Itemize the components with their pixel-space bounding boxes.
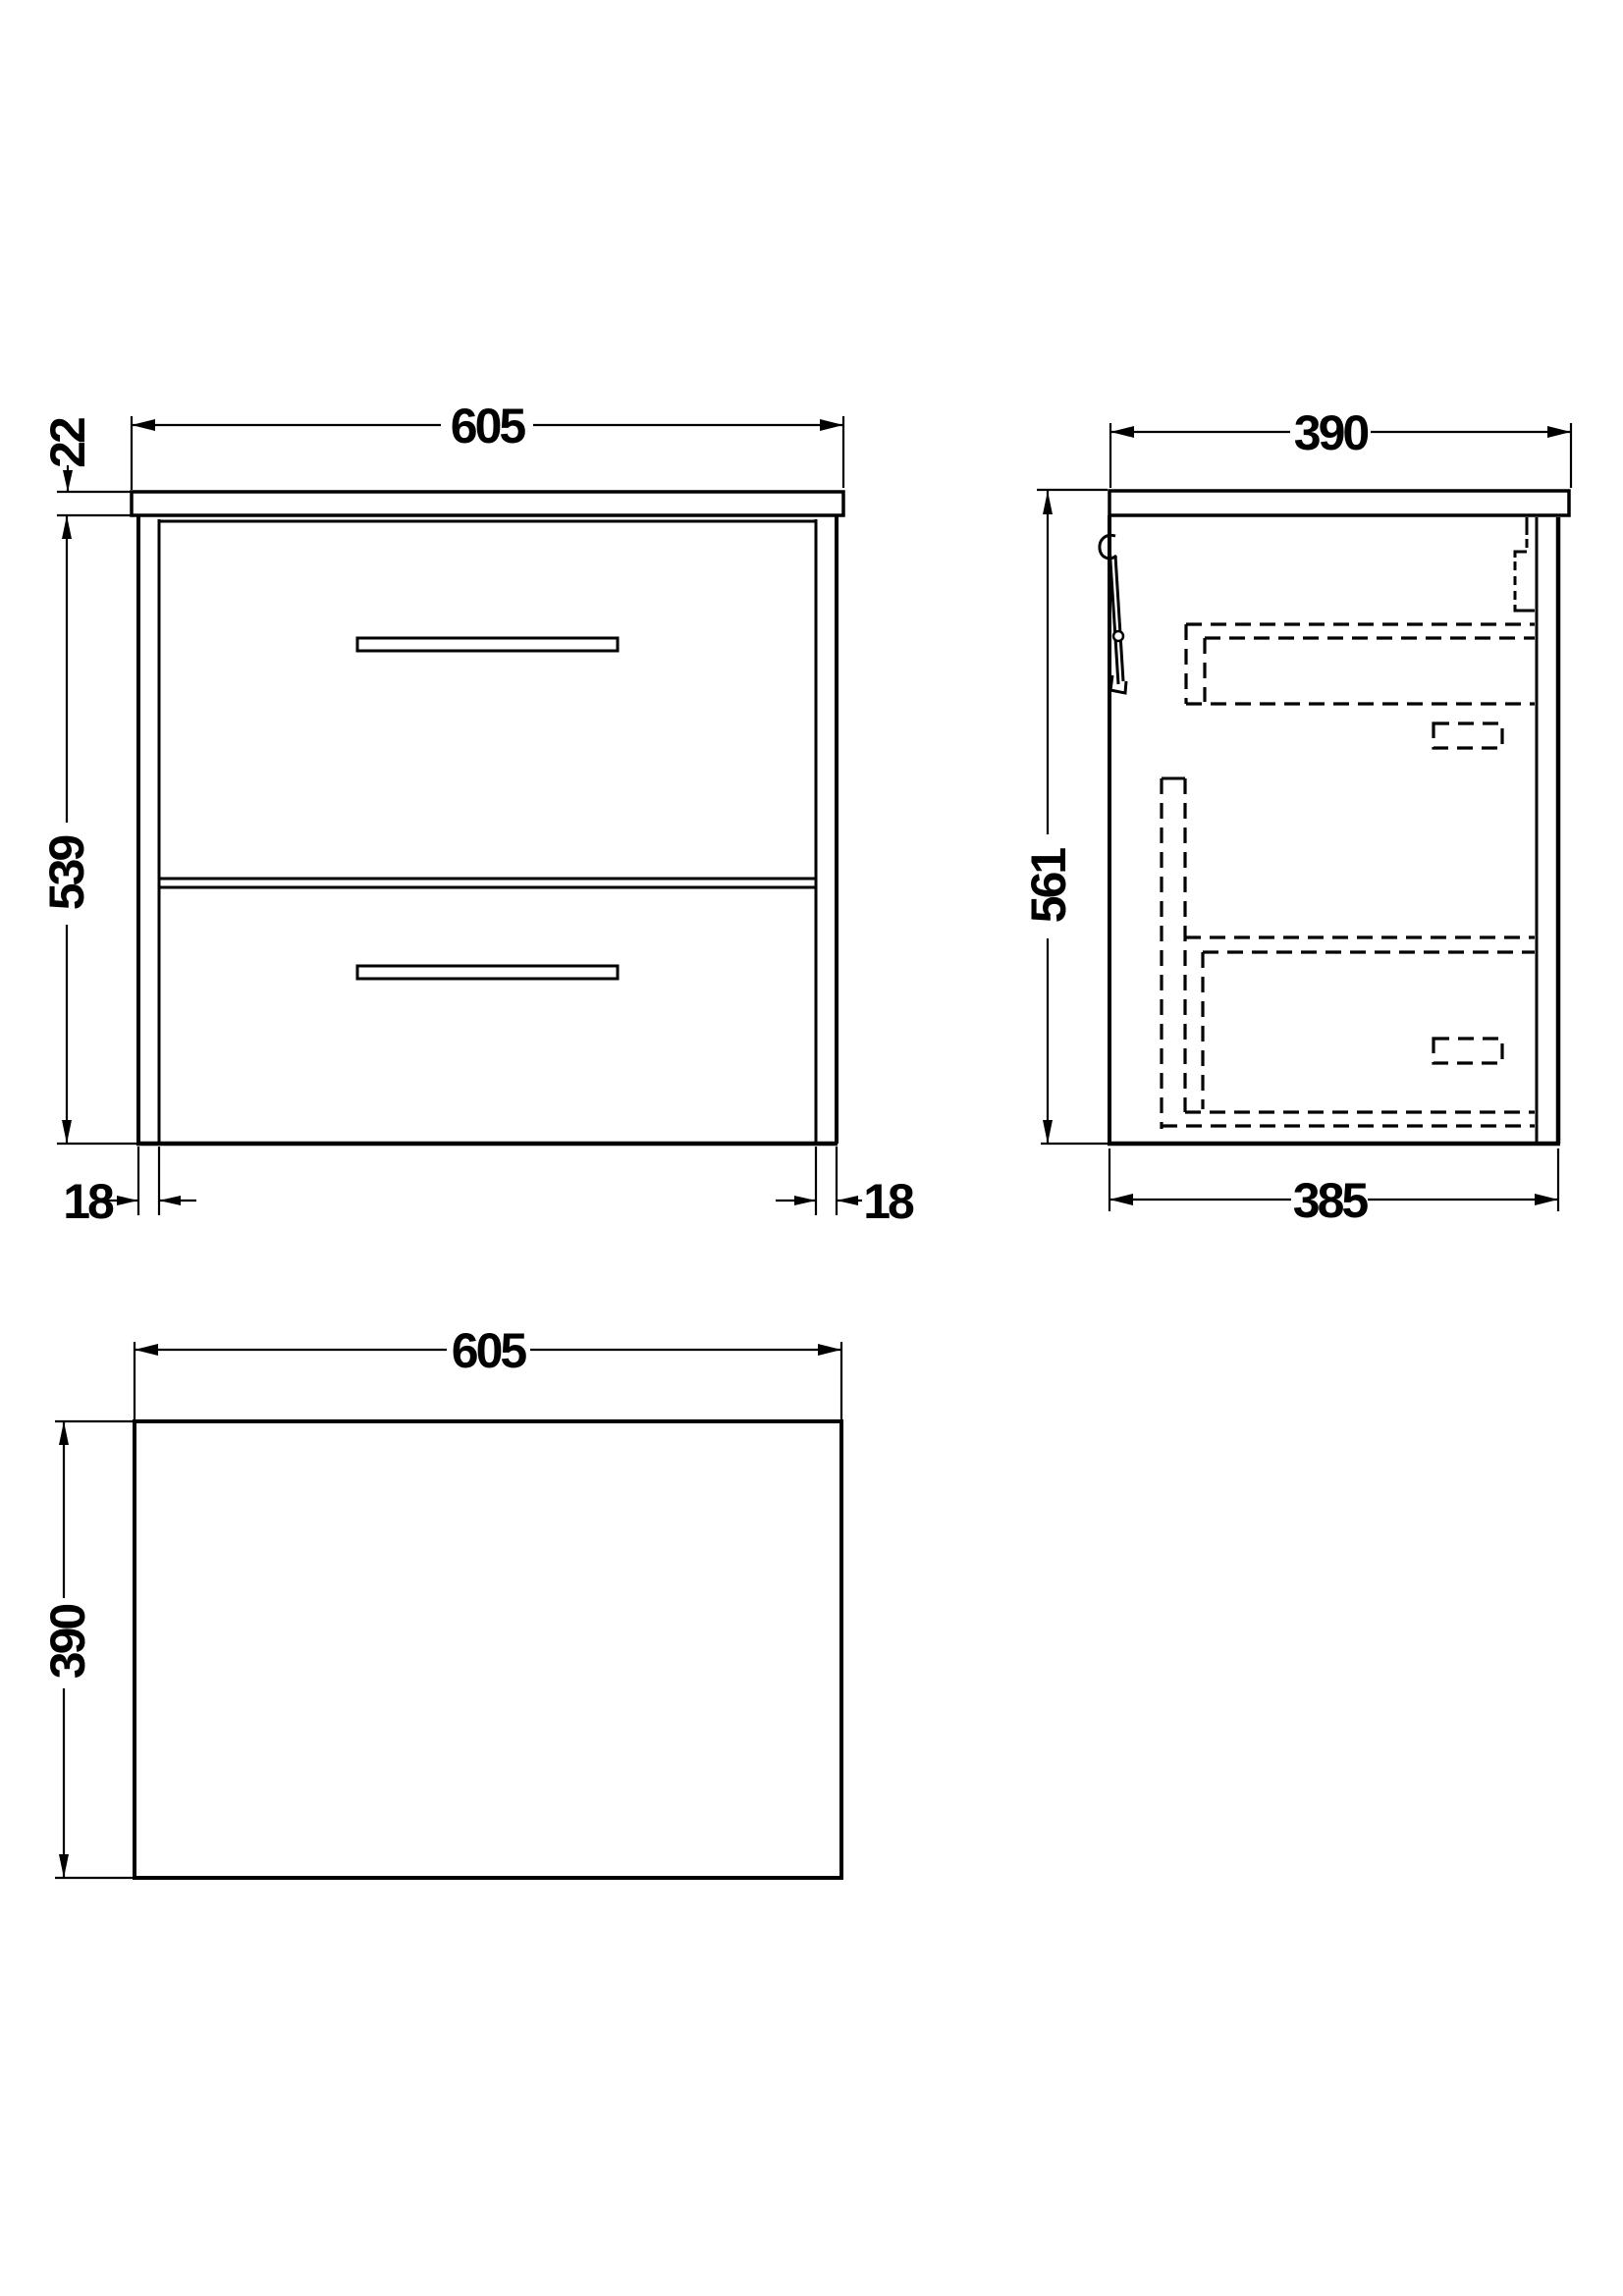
arrowhead-right [818,1344,841,1356]
arrowhead-left [1110,426,1134,438]
front-left-panel-dimension: 18 [63,1147,196,1229]
front-view: 605 22 539 18 [39,399,914,1229]
plan-depth-label: 390 [40,1605,95,1680]
front-width-dimension: 605 [132,399,843,490]
wall-rail-bracket [1515,517,1535,611]
arrowhead-down [59,1854,69,1878]
arrowhead-left [1109,1194,1133,1205]
arrowhead-down [1043,1120,1053,1144]
vanity-unit-technical-drawing: 605 22 539 18 [0,0,1623,2296]
side-depth-dimension: 390 [1110,405,1571,488]
side-carcass-depth-label: 385 [1293,1173,1369,1228]
front-height-dimension: 539 [39,515,136,1144]
arrowhead-right [794,1196,816,1205]
arrowhead-down [63,470,73,492]
arrowhead-right [117,1196,138,1205]
arrowhead-left [132,419,155,431]
side-height-dimension: 561 [1021,490,1108,1144]
side-carcass-depth-dimension: 385 [1109,1148,1558,1228]
front-worktop [132,492,843,515]
arrowhead-left [135,1344,158,1356]
plan-width-dimension: 605 [135,1323,841,1419]
arrowhead-down [62,1120,72,1144]
front-worktop-thickness-dimension: 22 [40,418,132,515]
side-view: 390 561 385 [1021,405,1571,1228]
arrowhead-up [59,1421,69,1445]
arrowhead-right [820,419,843,431]
front-left-panel-label: 18 [63,1174,114,1229]
front-right-panel-dimension: 18 [776,1147,914,1229]
bottom-drawer-handle [357,966,618,979]
rail-bottom [1515,605,1535,611]
lower-drawer-hidden-outline [1162,778,1535,1129]
arrowhead-left [837,1196,858,1205]
front-height-label: 539 [39,836,94,911]
front-width-label: 605 [451,399,526,454]
front-worktop-thickness-label: 22 [40,418,95,468]
plan-width-label: 605 [452,1323,527,1378]
side-depth-label: 390 [1294,405,1369,460]
drawer-runner [1434,1039,1502,1063]
plan-worktop-outline [135,1421,841,1878]
plan-view: 605 390 [40,1323,841,1878]
arrowhead-up [1043,491,1053,514]
technical-drawing-page: 605 22 539 18 [0,0,1623,2296]
side-height-label: 561 [1021,848,1076,924]
bracket-adjuster-screw [1113,631,1123,641]
rail-step [1515,552,1527,558]
front-right-panel-label: 18 [863,1174,914,1229]
arrowhead-up [62,515,72,539]
upper-drawer-hidden-outline [1186,624,1535,748]
arrowhead-right [1547,426,1571,438]
wall-hanging-bracket-icon [1100,535,1126,693]
top-drawer-handle [357,638,618,651]
arrowhead-right [1535,1194,1558,1205]
plan-depth-dimension: 390 [40,1421,133,1878]
side-worktop [1109,491,1569,515]
drawer-runner [1434,723,1502,748]
arrowhead-left [159,1196,181,1205]
